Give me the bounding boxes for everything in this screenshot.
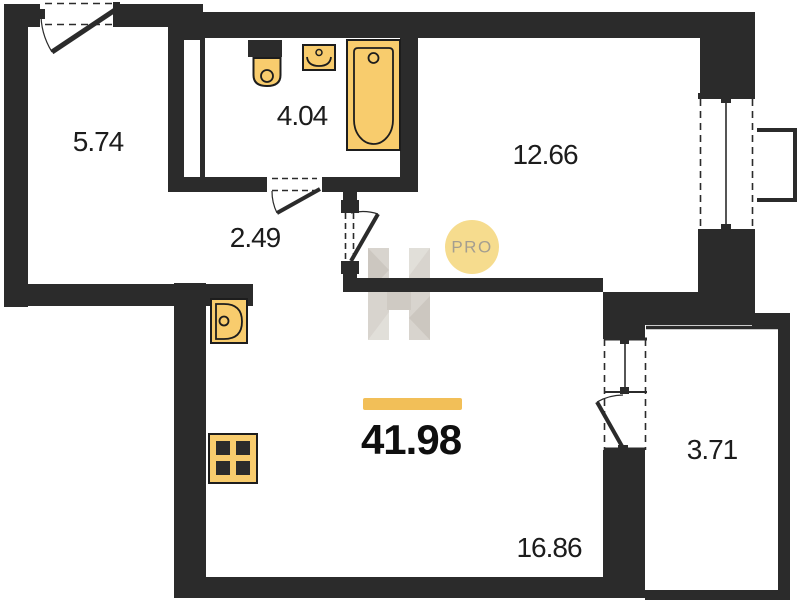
floor-plan: PRO — [0, 0, 800, 600]
window-frame-block — [721, 95, 731, 103]
room-area-label-bathroom: 4.04 — [277, 102, 328, 130]
wall-right-pier — [700, 38, 755, 95]
toilet-tank — [248, 40, 282, 57]
room-area-label-balcony: 3.71 — [687, 436, 738, 464]
kitchen-sink-icon — [211, 299, 247, 343]
floor-plan-drawing: PRO — [0, 0, 800, 600]
wall-living-left — [174, 283, 206, 598]
stove-burner — [216, 441, 230, 455]
toilet-icon — [248, 40, 282, 86]
wall-top-right — [203, 12, 755, 38]
stove-burner — [216, 461, 230, 475]
window-bedroom — [701, 95, 753, 232]
wall-outer-left — [4, 4, 28, 307]
wall-band-right — [603, 292, 703, 325]
balcony-window-frame-block — [620, 337, 629, 344]
watermark-pro-text: PRO — [451, 238, 492, 257]
stove-icon — [209, 434, 257, 483]
total-area-label: 41.98 — [361, 419, 461, 461]
window-frame-block — [721, 224, 731, 232]
wall-balcony-divider-top — [603, 325, 645, 339]
wall-balcony-bottom — [645, 590, 790, 600]
entrance-door — [41, 4, 115, 53]
wall-top-mid — [120, 4, 203, 27]
wall-band-main — [343, 278, 603, 292]
balcony-door-swing-arc — [597, 395, 623, 402]
wall-balcony-divider-bottom — [603, 450, 645, 593]
wall-bottom-main — [174, 577, 645, 598]
balcony-door-leaf — [597, 402, 623, 448]
wall-corridor-right-top — [343, 188, 357, 200]
stove-burner — [236, 441, 250, 455]
total-area-accent-bar — [363, 398, 462, 410]
wall-balcony-corner — [752, 313, 790, 327]
entry-door-jamb-right — [113, 2, 120, 27]
bathroom-door-leaf — [277, 189, 320, 213]
balcony-door-window — [597, 337, 647, 452]
bathroom-door-swing-arc — [272, 191, 277, 213]
wall-balcony-right — [778, 327, 790, 600]
corridor-door-jamb-bottom — [341, 261, 359, 274]
room-area-label-kitchen-living: 16.86 — [516, 534, 581, 562]
bathtub-body — [347, 40, 400, 150]
room-area-label-bedroom: 12.66 — [512, 141, 577, 169]
washbasin-icon — [303, 45, 335, 70]
wall-top-left — [4, 4, 40, 27]
bathroom-door — [272, 179, 320, 214]
wall-bathroom-right — [400, 38, 418, 192]
wall-bathroom-bottom-left — [184, 177, 267, 192]
ac-basket — [757, 130, 795, 200]
bathtub-icon — [347, 40, 400, 150]
stove-burner — [236, 461, 250, 475]
room-area-label-corridor: 2.49 — [230, 224, 281, 252]
room-area-label-entrance-hall: 5.74 — [73, 128, 124, 156]
entrance-door-leaf — [52, 10, 115, 52]
wall-hall-right — [168, 28, 184, 192]
wall-bathroom-left — [200, 40, 205, 180]
corridor-door-jamb-top — [341, 200, 359, 213]
wall-corridor-right-bottom — [343, 274, 357, 280]
wall-right-mid — [698, 233, 755, 325]
